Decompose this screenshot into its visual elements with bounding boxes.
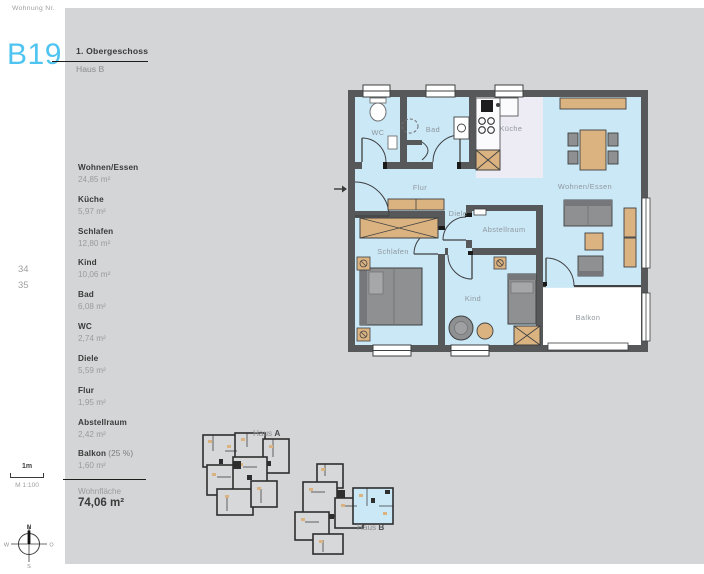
room-list-item: Schlafen 12,80 m² — [78, 227, 113, 248]
scale-bar-length: 1m — [10, 463, 44, 470]
nightstand-icon — [357, 257, 370, 270]
hall-bench — [388, 199, 444, 210]
compass-east-label: O — [49, 543, 54, 549]
compass-west-label: W — [4, 543, 10, 549]
sideboard — [560, 98, 626, 109]
nightstand-icon — [494, 257, 506, 269]
wc-sink — [388, 136, 397, 149]
scale-bar — [10, 477, 44, 478]
house-subtitle: Haus B — [76, 64, 104, 74]
wc-toilet-tank — [370, 98, 386, 103]
unit-number: B19 — [7, 40, 62, 70]
room-list-item: WC 2,74 m² — [78, 322, 106, 343]
room-label-bad: Bad — [426, 125, 440, 134]
header-rule — [52, 61, 148, 62]
room-label-diele: Diele — [449, 209, 468, 218]
room-list-item: Wohnen/Essen 24,85 m² — [78, 163, 138, 184]
compass-south-label: S — [27, 564, 31, 569]
sofa — [564, 200, 612, 226]
total-area-label: Wohnfläche — [78, 487, 121, 496]
room-list-item: Bad 6,08 m² — [78, 290, 106, 311]
room-label-flur: Flur — [413, 183, 427, 192]
room-list-item: Balkon(25 %) 1,60 m² — [78, 449, 133, 470]
room-label-balkon: Balkon — [576, 313, 601, 322]
wardrobe-schlafen — [360, 218, 438, 238]
wardrobe-kind — [514, 326, 540, 345]
scale-tick-right — [43, 473, 44, 478]
room-list-item: Flur 1,95 m² — [78, 386, 106, 407]
room-label-wc: WC — [372, 128, 385, 137]
room-list-item: Diele 5,59 m² — [78, 354, 106, 375]
kids-bed — [508, 274, 536, 324]
page-number-right: 35 — [18, 280, 29, 291]
wall-unit-upper — [624, 208, 636, 237]
kids-chair — [449, 316, 473, 340]
compass-rose: N W O S — [2, 521, 56, 569]
kitchen-sink — [481, 100, 493, 112]
shaft — [476, 150, 500, 170]
kitchen-faucet-icon — [496, 103, 500, 107]
double-bed — [360, 268, 422, 325]
keyplan-label-haus-b: Haus B — [357, 523, 384, 532]
floor-plan: WC Bad Küche Flur Diele Abstellraum Wohn… — [332, 81, 654, 361]
balcony-door-gap — [546, 284, 574, 288]
scale-ratio: M 1:100 — [4, 482, 50, 489]
compass-needle-icon — [28, 531, 31, 545]
wc-toilet — [370, 103, 386, 121]
room-label-kind: Kind — [465, 294, 481, 303]
brochure-page: Wohnung Nr. B19 1. Obergeschoss Haus B 3… — [0, 0, 704, 574]
wohnung-nr-label: Wohnung Nr. — [12, 5, 55, 12]
entrance-arrow-icon — [334, 186, 347, 193]
keyplan-haus-b — [295, 464, 393, 554]
coffee-table — [585, 233, 603, 250]
storage-fixture — [474, 209, 486, 215]
wall-unit-lower — [624, 238, 636, 267]
nightstand-icon — [357, 328, 370, 341]
scale-tick-left — [10, 473, 11, 478]
page-number-left: 34 — [18, 264, 29, 275]
room-label-schlafen: Schlafen — [377, 247, 409, 256]
room-label-kueche: Küche — [500, 124, 523, 133]
washing-machine — [454, 117, 469, 139]
room-list-item: Küche 5,97 m² — [78, 195, 106, 216]
dining-table — [580, 130, 606, 170]
total-divider — [63, 479, 146, 480]
total-area-value: 74,06 m² — [78, 497, 124, 509]
keyplan-haus-a — [203, 433, 289, 515]
compass-north-label: N — [27, 525, 31, 531]
room-list-item: Kind 10,06 m² — [78, 258, 110, 279]
keyplans — [195, 425, 410, 560]
room-label-wohnen-essen: Wohnen/Essen — [558, 182, 612, 191]
floor-title: 1. Obergeschoss — [76, 46, 148, 56]
keyplan-label-haus-a: Haus A — [253, 429, 280, 438]
kids-stool — [477, 323, 493, 339]
armchair — [578, 256, 603, 276]
room-list-item: Abstellraum 2,42 m² — [78, 418, 127, 439]
room-label-abstellraum: Abstellraum — [483, 225, 526, 234]
